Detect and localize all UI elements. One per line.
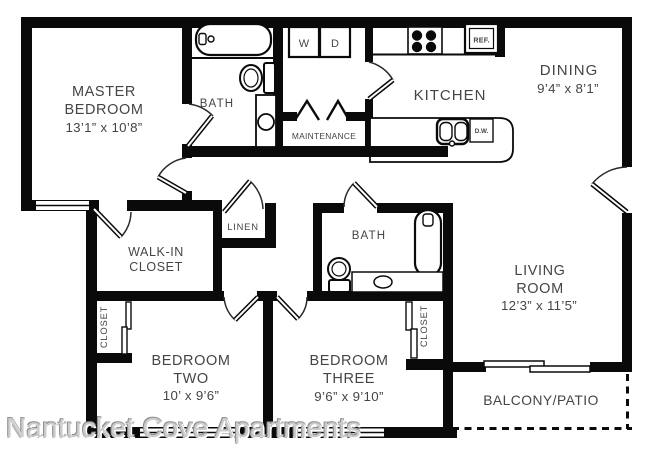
label-hall-bath: BATH [352, 230, 387, 242]
stove-burner-icon [426, 42, 436, 52]
stove-burner-icon [412, 42, 422, 52]
kitchen-faucet-icon [450, 141, 455, 146]
stove-burner-icon [412, 30, 422, 40]
label-dining-dims: 9’4” x 8’1” [537, 81, 599, 96]
door-leaf-laundry-inner [369, 80, 393, 99]
label-bedroom-three-1: BEDROOM [309, 353, 388, 369]
label-master-bedroom-2: BEDROOM [64, 102, 143, 118]
wall-bath2-left [313, 203, 322, 301]
door-leaf-bedroom-two-inner [235, 297, 258, 320]
wall-maintenance-top-right [346, 112, 373, 121]
label-dryer: D [331, 38, 339, 50]
label-refrigerator: REF. [473, 36, 489, 45]
label-living-dims: 12’3” x 11’5” [501, 298, 577, 313]
door-leaf-master-bath-inner [188, 116, 212, 146]
watermark-text: Nantucket Cove Apartments [6, 412, 361, 444]
wall-bath2-top-right [377, 203, 453, 213]
label-balcony: BALCONY/PATIO [483, 393, 599, 408]
door-arc-hall-bath [344, 183, 354, 207]
label-washer: W [299, 38, 310, 50]
sliding-glass-door-panel-right [530, 366, 590, 372]
accordion-door-icon [295, 101, 349, 120]
door-arc-entry [592, 167, 627, 184]
wall-laundry-right-upper [365, 17, 373, 62]
wall-right-upper [622, 17, 632, 167]
bathtub-faucet-icon-hall [423, 214, 433, 226]
wall-closet3-bottom [406, 359, 453, 370]
label-bedroom-two-dims: 10’ x 9’6” [163, 388, 219, 403]
toilet-bowl-inner-master [244, 69, 258, 87]
label-master-bedroom-dims: 13’1” x 10’8” [65, 120, 142, 135]
toilet-bowl-inner-hall [332, 262, 346, 276]
fixtures [192, 24, 513, 292]
label-master-bath: BATH [200, 98, 235, 110]
floor-plan-canvas: MASTER BEDROOM 13’1” x 10’8” BATH W D KI… [0, 0, 650, 459]
closet3-bypass-door-a [406, 302, 412, 330]
door-arc-master-bedroom [158, 158, 186, 177]
closet2-bypass-door-b [122, 327, 127, 354]
vanity-sink-icon-master [258, 114, 274, 130]
wall-master-right-upper [182, 17, 192, 104]
bathtub-icon-master [196, 24, 271, 55]
label-living-1: LIVING [514, 263, 565, 279]
label-closet-bedroom-three: CLOSET [418, 305, 429, 347]
door-leaf-entry-inner [592, 184, 627, 212]
door-leaf-master-bedroom-inner [158, 177, 186, 193]
door-leaf-linen-inner [224, 181, 250, 212]
label-dishwasher: D.W. [475, 128, 489, 135]
wall-left-lower [86, 200, 97, 438]
door-arc-walkin-closet [121, 212, 131, 237]
bathtub-knob-icon [208, 36, 214, 42]
label-linen: LINEN [227, 221, 259, 232]
kitchen-sink-basin-right [455, 123, 467, 141]
label-living-2: ROOM [516, 281, 564, 297]
door-arc-laundry [369, 62, 393, 80]
closet3-bypass-door-b [411, 329, 417, 358]
closet2-bypass-door-a [126, 302, 131, 329]
wall-left-upper [21, 17, 32, 211]
kitchen-sink-basin-left [440, 123, 452, 141]
label-closet-bedroom-two: CLOSET [98, 306, 109, 348]
wall-under-island [365, 146, 448, 157]
label-bedroom-three-dims: 9’6” x 9’10” [314, 389, 383, 404]
bathtub-faucet-icon [199, 34, 206, 45]
wall-walkin-top [127, 200, 222, 211]
floor-plan: MASTER BEDROOM 13’1” x 10’8” BATH W D KI… [0, 0, 650, 459]
wall-linen-bottom [213, 238, 275, 248]
label-kitchen: KITCHEN [414, 87, 487, 104]
door-arc-bedroom-two [224, 297, 235, 320]
door-arc-bedroom-three [298, 297, 307, 319]
label-bedroom-two-2: TWO [173, 371, 209, 387]
vanity-sink-icon-hall [374, 276, 392, 288]
label-walkin-2: CLOSET [129, 260, 183, 274]
label-master-bedroom-1: MASTER [72, 84, 136, 100]
wall-right-lower [622, 213, 632, 372]
door-arc-linen [250, 181, 263, 209]
wall-bath2-top-left [313, 203, 344, 213]
toilet-tank-icon-master [264, 63, 275, 93]
wall-living-left [443, 203, 453, 438]
stove-burner-icon [426, 30, 436, 40]
door-leaf-walkin-closet-inner [94, 209, 121, 237]
room-labels: MASTER BEDROOM 13’1” x 10’8” BATH W D KI… [64, 36, 598, 409]
label-dining: DINING [540, 62, 599, 79]
label-maintenance: MAINTENANCE [292, 131, 356, 141]
door-leaf-bedroom-three-inner [277, 297, 298, 319]
toilet-base-icon-hall [329, 280, 350, 292]
vanity-icon-hall [352, 272, 443, 292]
label-bedroom-three-2: THREE [323, 371, 375, 387]
wall-hall-bottom-left [86, 291, 224, 301]
label-bedroom-two-1: BEDROOM [151, 353, 230, 369]
wall-walkin-right [213, 200, 222, 301]
label-walkin-1: WALK-IN [128, 245, 184, 259]
door-leaf-hall-bath-inner [354, 183, 377, 207]
